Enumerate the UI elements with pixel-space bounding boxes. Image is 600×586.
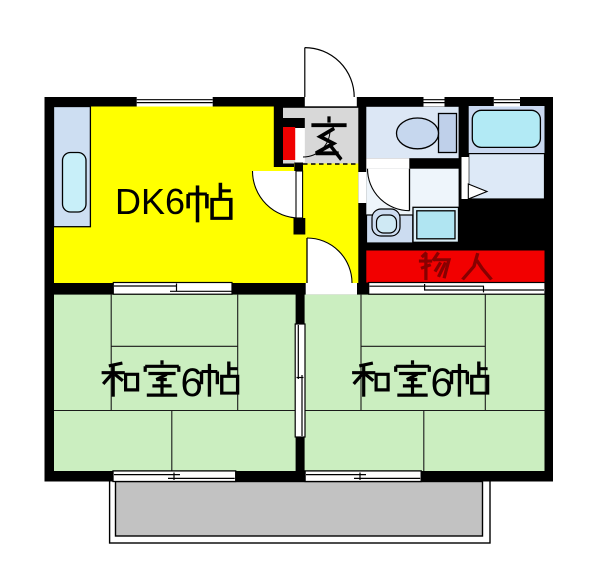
svg-text:6: 6	[431, 361, 453, 405]
svg-text:6: 6	[181, 361, 203, 405]
svg-text:DK6: DK6	[115, 181, 185, 222]
